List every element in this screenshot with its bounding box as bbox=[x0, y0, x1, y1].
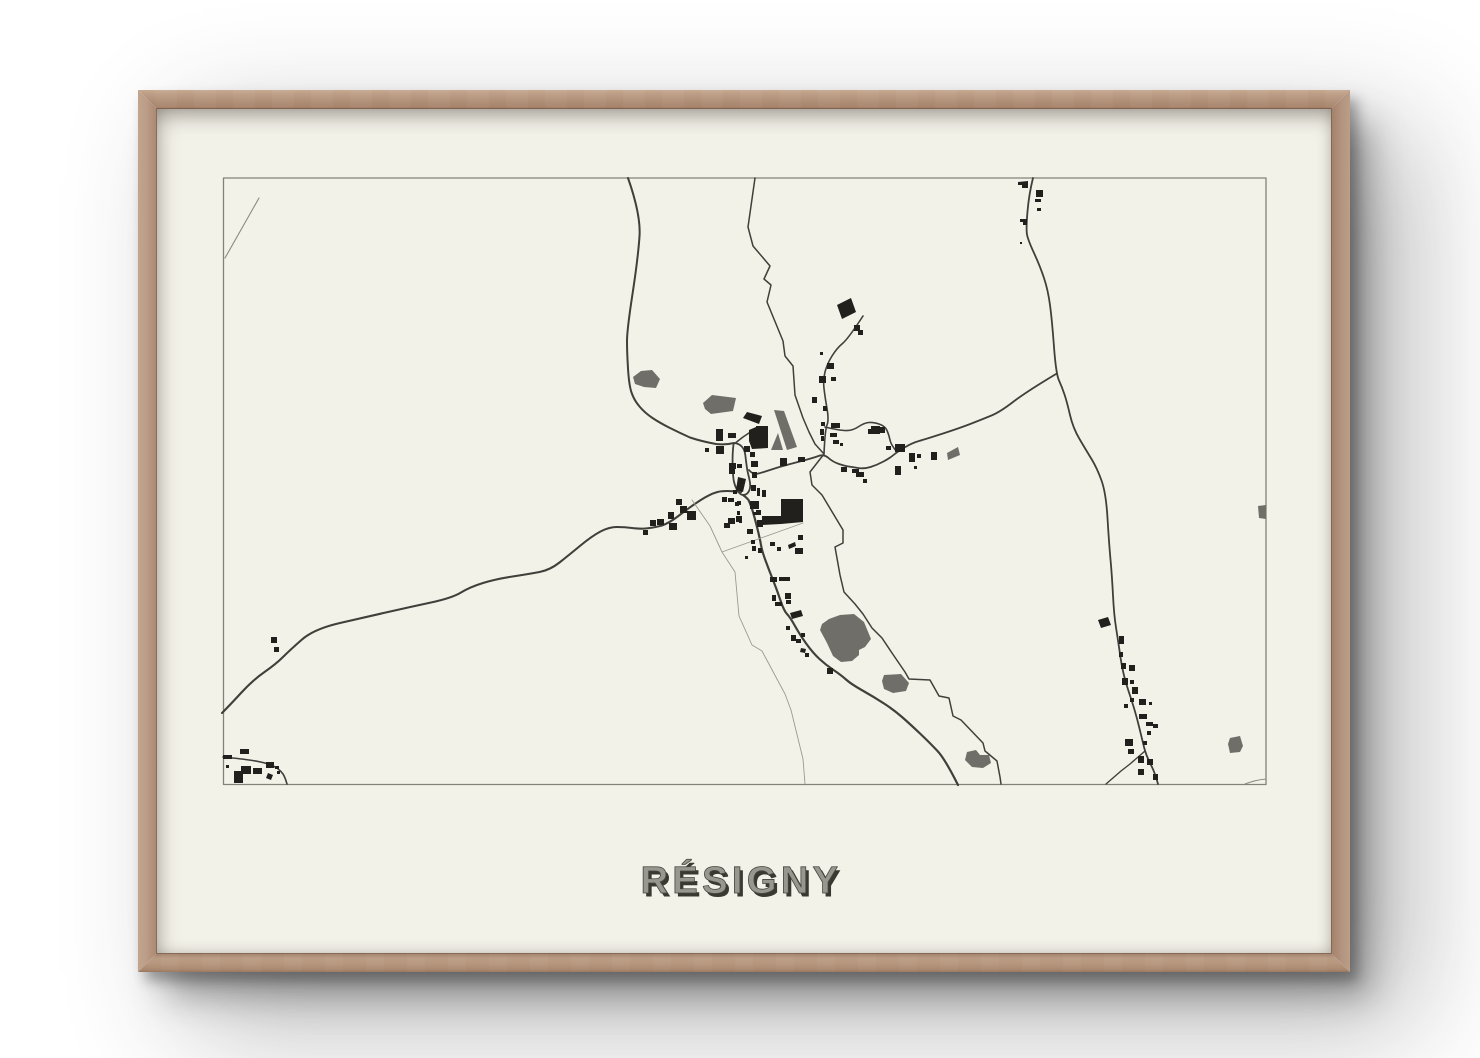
svg-text:RÉSIGNY: RÉSIGNY bbox=[641, 858, 843, 902]
